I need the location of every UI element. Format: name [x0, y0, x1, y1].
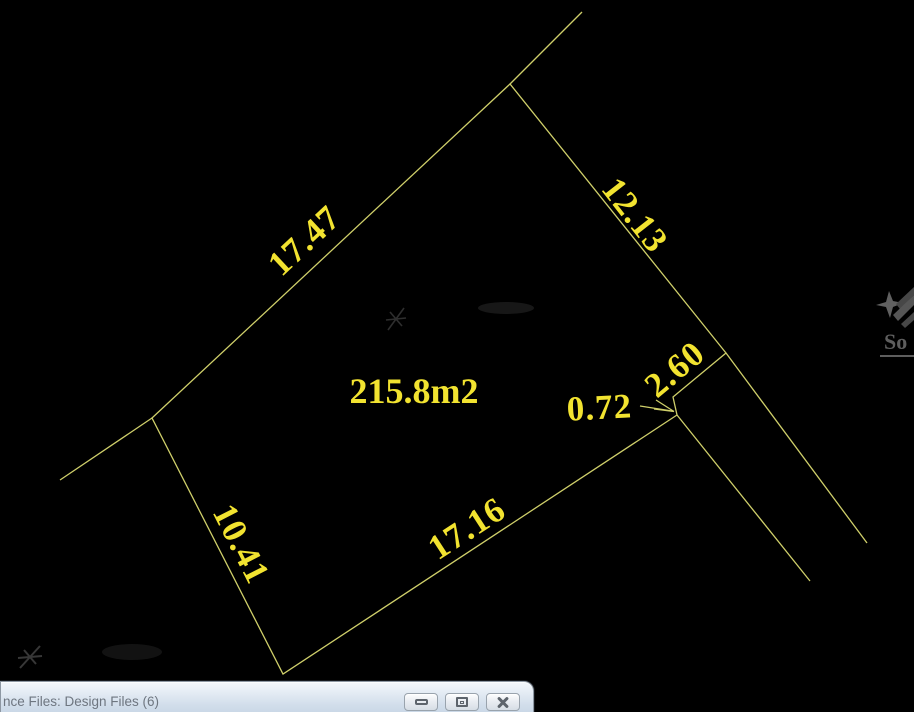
dimension-leader-arrow-icon — [640, 400, 674, 412]
boundary-extension-west — [60, 418, 152, 480]
close-icon — [496, 695, 510, 709]
restore-button[interactable] — [445, 693, 479, 711]
dimension-label-2-60: 2.60 — [637, 333, 712, 405]
dimension-label-17-47: 17.47 — [260, 198, 348, 284]
dimension-label-0-72: 0.72 — [566, 386, 633, 428]
dimension-label-17-16: 17.16 — [421, 489, 512, 567]
area-label: 215.8m2 — [350, 371, 479, 411]
watermark-logo-text: So — [884, 329, 907, 354]
window-title-text: nce Files: Design Files (6) — [3, 694, 159, 709]
adjacent-line-outer — [726, 353, 867, 543]
watermark-logo: So — [876, 287, 914, 356]
cad-screenshot: 17.47 12.13 2.60 0.72 10.41 17.16 215.8m… — [0, 0, 914, 712]
boundary-extension-north — [510, 12, 582, 84]
restore-down-icon — [456, 697, 468, 707]
dimension-label-12-13: 12.13 — [594, 170, 676, 260]
cad-canvas[interactable]: 17.47 12.13 2.60 0.72 10.41 17.16 215.8m… — [0, 0, 914, 712]
minimize-icon — [415, 699, 428, 705]
minimize-button[interactable] — [404, 693, 438, 711]
faint-watermark-marks — [18, 302, 534, 668]
window-controls — [404, 693, 520, 711]
window-titlebar[interactable]: nce Files: Design Files (6) — [0, 681, 534, 712]
close-button[interactable] — [486, 693, 520, 711]
